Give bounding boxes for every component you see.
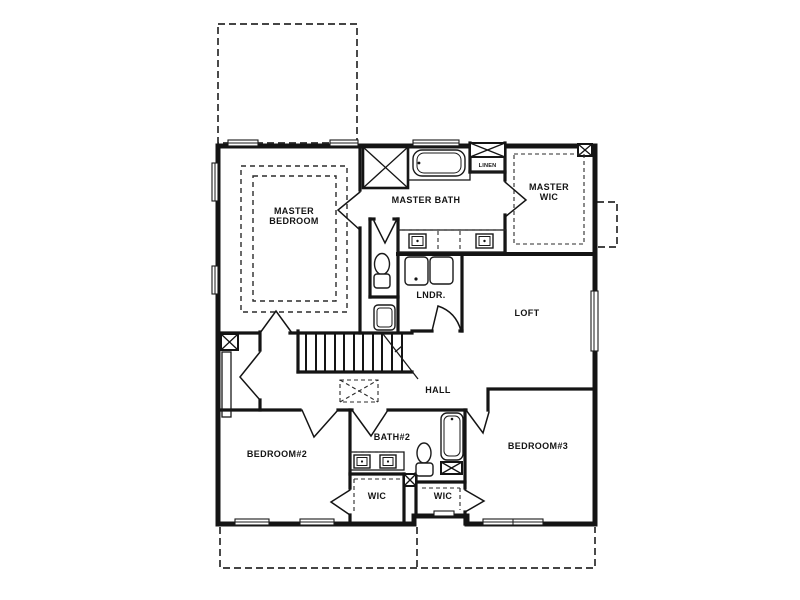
bathtub-icon — [441, 413, 463, 460]
door-swing — [466, 410, 489, 433]
roof-outline-top — [218, 24, 357, 143]
attic-access-icon — [340, 380, 378, 402]
room-label-bath-2: BATH#2 — [374, 432, 410, 442]
double-vanity-icon — [350, 452, 404, 470]
chase-x-icon — [404, 474, 416, 486]
window — [235, 519, 269, 525]
window — [330, 140, 358, 146]
room-label-wic-left: WIC — [368, 491, 387, 501]
bedroom-rug-outline — [241, 166, 347, 312]
room-label-master-bedroom: MASTER — [274, 206, 314, 216]
door-swing — [302, 410, 338, 437]
floor-plan-page: MASTER BEDROOM MASTER BATH LINEN MASTER … — [0, 0, 800, 600]
room-label-master-wic: MASTER — [529, 182, 569, 192]
door-swing — [505, 182, 526, 217]
room-label-hall: HALL — [425, 385, 451, 395]
washer-dryer-icon — [405, 257, 453, 285]
garden-tub-icon — [408, 146, 470, 180]
window — [483, 519, 543, 525]
door-swing — [260, 311, 292, 333]
toilet-icon — [374, 254, 390, 289]
window — [300, 519, 334, 525]
room-label-master-wic: WIC — [540, 192, 559, 202]
door-swing — [240, 352, 260, 400]
door-swing — [465, 490, 484, 512]
window — [413, 140, 459, 146]
floor-plan-drawing: MASTER BEDROOM MASTER BATH LINEN MASTER … — [0, 0, 800, 600]
room-label-bedroom-2: BEDROOM#2 — [247, 449, 307, 459]
shower-icon — [363, 147, 408, 188]
chase-bump-right — [597, 202, 617, 247]
room-label-loft: LOFT — [515, 308, 540, 318]
room-label-master-bath: MASTER BATH — [392, 195, 461, 205]
door-swing — [432, 306, 461, 331]
room-label-wic-right: WIC — [434, 491, 453, 501]
door-swing — [374, 221, 396, 243]
room-label-laundry: LNDR. — [416, 290, 445, 300]
chase-x-icon — [221, 334, 238, 417]
chase-x-icon — [441, 462, 462, 474]
roof-outline-bottom — [220, 527, 595, 568]
window — [434, 511, 454, 516]
window — [591, 291, 598, 351]
window — [212, 266, 218, 294]
utility-sink-icon — [374, 305, 395, 330]
room-label-linen: LINEN — [479, 163, 497, 169]
window — [228, 140, 258, 146]
room-label-master-bedroom: BEDROOM — [269, 216, 318, 226]
door-swing — [338, 192, 360, 230]
window — [212, 163, 218, 201]
door-swing — [331, 490, 350, 515]
room-label-bedroom-3: BEDROOM#3 — [508, 441, 568, 451]
toilet-icon — [416, 443, 433, 476]
double-vanity-icon — [398, 230, 506, 252]
